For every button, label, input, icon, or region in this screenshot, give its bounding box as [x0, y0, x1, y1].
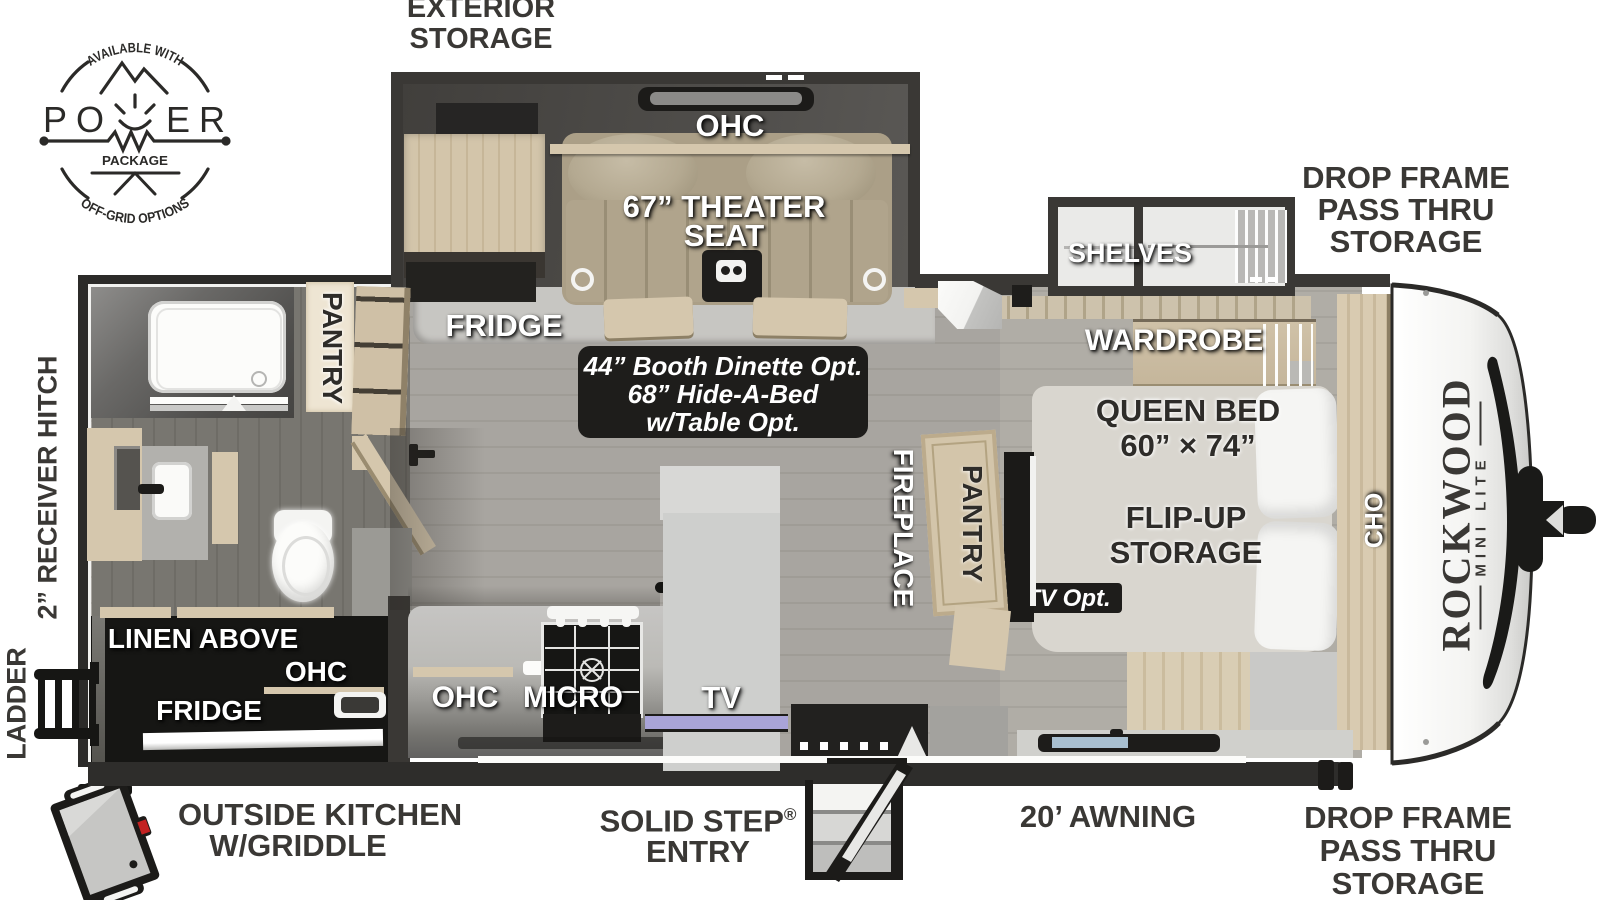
svg-text:PO: PO — [43, 99, 113, 140]
svg-text:PACKAGE: PACKAGE — [102, 153, 168, 168]
svg-text:OFF-GRID OPTIONS: OFF-GRID OPTIONS — [78, 195, 192, 226]
svg-text:ER: ER — [166, 99, 234, 140]
svg-text:AVAILABLE WITH: AVAILABLE WITH — [84, 40, 186, 69]
